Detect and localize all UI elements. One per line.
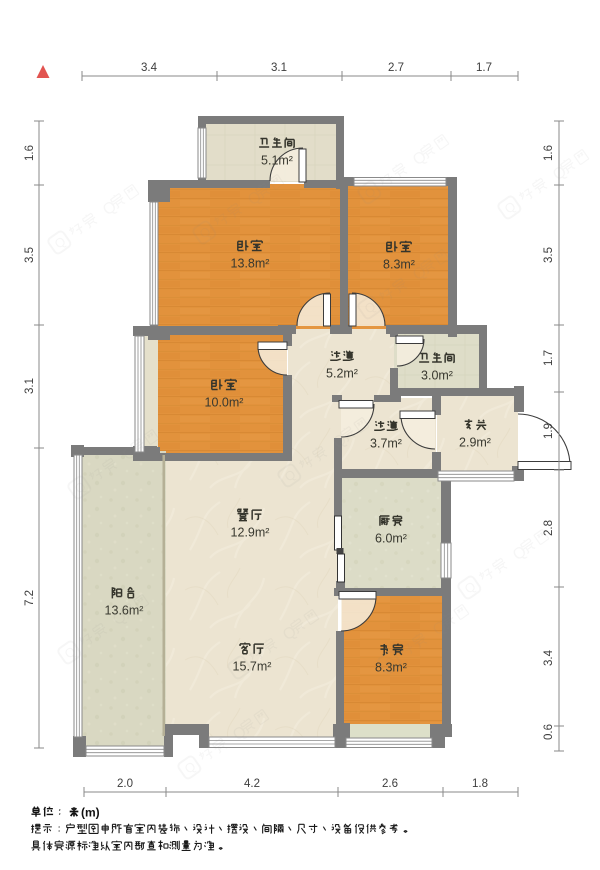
svg-text:3.1: 3.1 xyxy=(271,62,287,74)
svg-text:1.7: 1.7 xyxy=(476,62,492,74)
svg-text:7.2: 7.2 xyxy=(24,590,36,606)
svg-text:3.5: 3.5 xyxy=(543,247,555,263)
svg-text:2.6: 2.6 xyxy=(382,778,398,790)
svg-text:3.5: 3.5 xyxy=(24,247,36,263)
svg-text:4.2: 4.2 xyxy=(244,778,260,790)
svg-text:12.9m²: 12.9m² xyxy=(231,526,270,540)
svg-text:3.0m²: 3.0m² xyxy=(421,369,453,383)
svg-text:10.0m²: 10.0m² xyxy=(205,396,244,410)
svg-text:1.8: 1.8 xyxy=(472,778,488,790)
svg-text:2.0: 2.0 xyxy=(117,778,133,790)
svg-text:3.4: 3.4 xyxy=(141,62,158,74)
svg-text:13.8m²: 13.8m² xyxy=(231,257,270,271)
svg-text:6.0m²: 6.0m² xyxy=(375,532,407,546)
svg-text:1.9: 1.9 xyxy=(543,423,555,439)
svg-text:1.6: 1.6 xyxy=(24,145,36,161)
svg-text:2.7: 2.7 xyxy=(388,62,404,74)
svg-text:5.2m²: 5.2m² xyxy=(326,367,358,381)
svg-text:3.4: 3.4 xyxy=(543,649,555,666)
svg-text:(m): (m) xyxy=(81,806,100,820)
svg-text:2.9m²: 2.9m² xyxy=(459,436,491,450)
svg-text:3.1: 3.1 xyxy=(24,378,36,394)
svg-text:1.7: 1.7 xyxy=(543,350,555,366)
svg-text:1.6: 1.6 xyxy=(543,145,555,161)
svg-text:5.1m²: 5.1m² xyxy=(261,154,293,168)
svg-text:0.6: 0.6 xyxy=(543,724,555,740)
svg-text:3.7m²: 3.7m² xyxy=(370,437,402,451)
